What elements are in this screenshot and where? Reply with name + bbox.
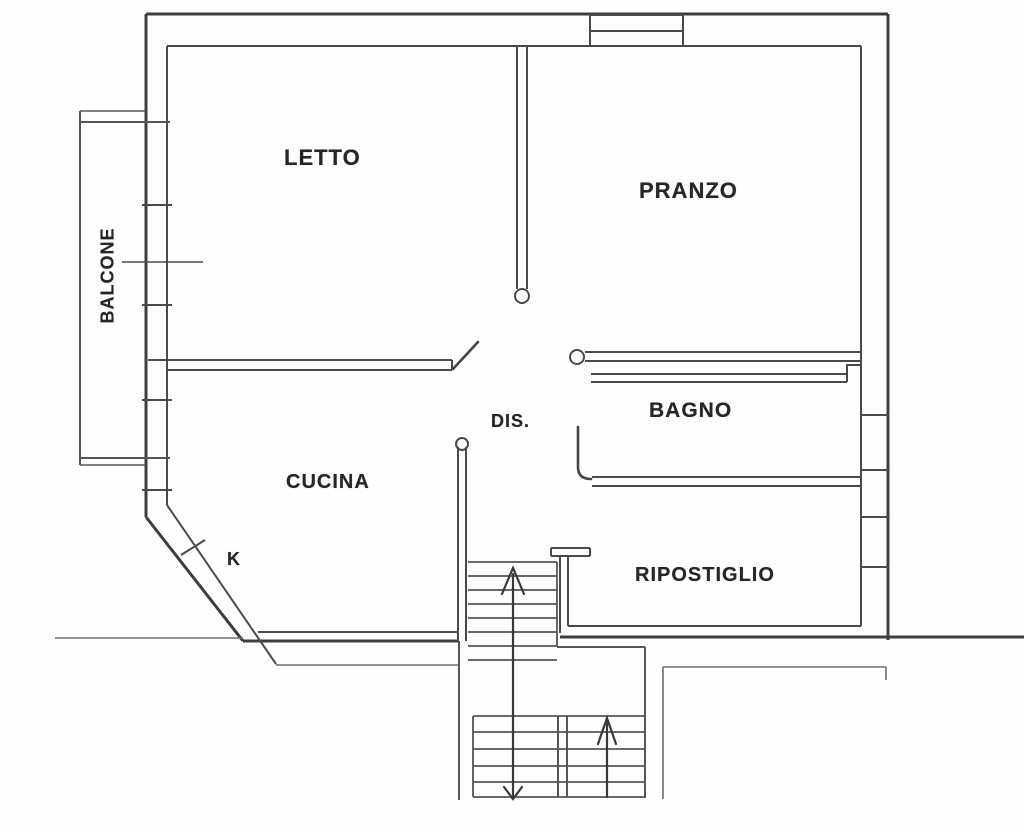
staircase [459,562,645,800]
room-label-cucina: CUCINA [286,471,370,494]
room-label-ripostiglio: RIPOSTIGLIO [635,564,775,587]
room-label-kitchen-k: K [227,549,241,570]
balcony-outline [80,111,170,465]
exterior-walls [146,14,1024,641]
room-label-balcone: BALCONE [98,211,119,341]
site-boundary-lines [55,638,886,799]
room-label-bagno: BAGNO [649,399,732,423]
window-markers [122,15,889,567]
room-label-letto: LETTO [284,145,361,171]
room-label-pranzo: PRANZO [639,178,738,204]
room-label-dis: DIS. [491,411,530,432]
floorplan-canvas: LETTO PRANZO BALCONE CUCINA K DIS. BAGNO… [0,0,1024,832]
